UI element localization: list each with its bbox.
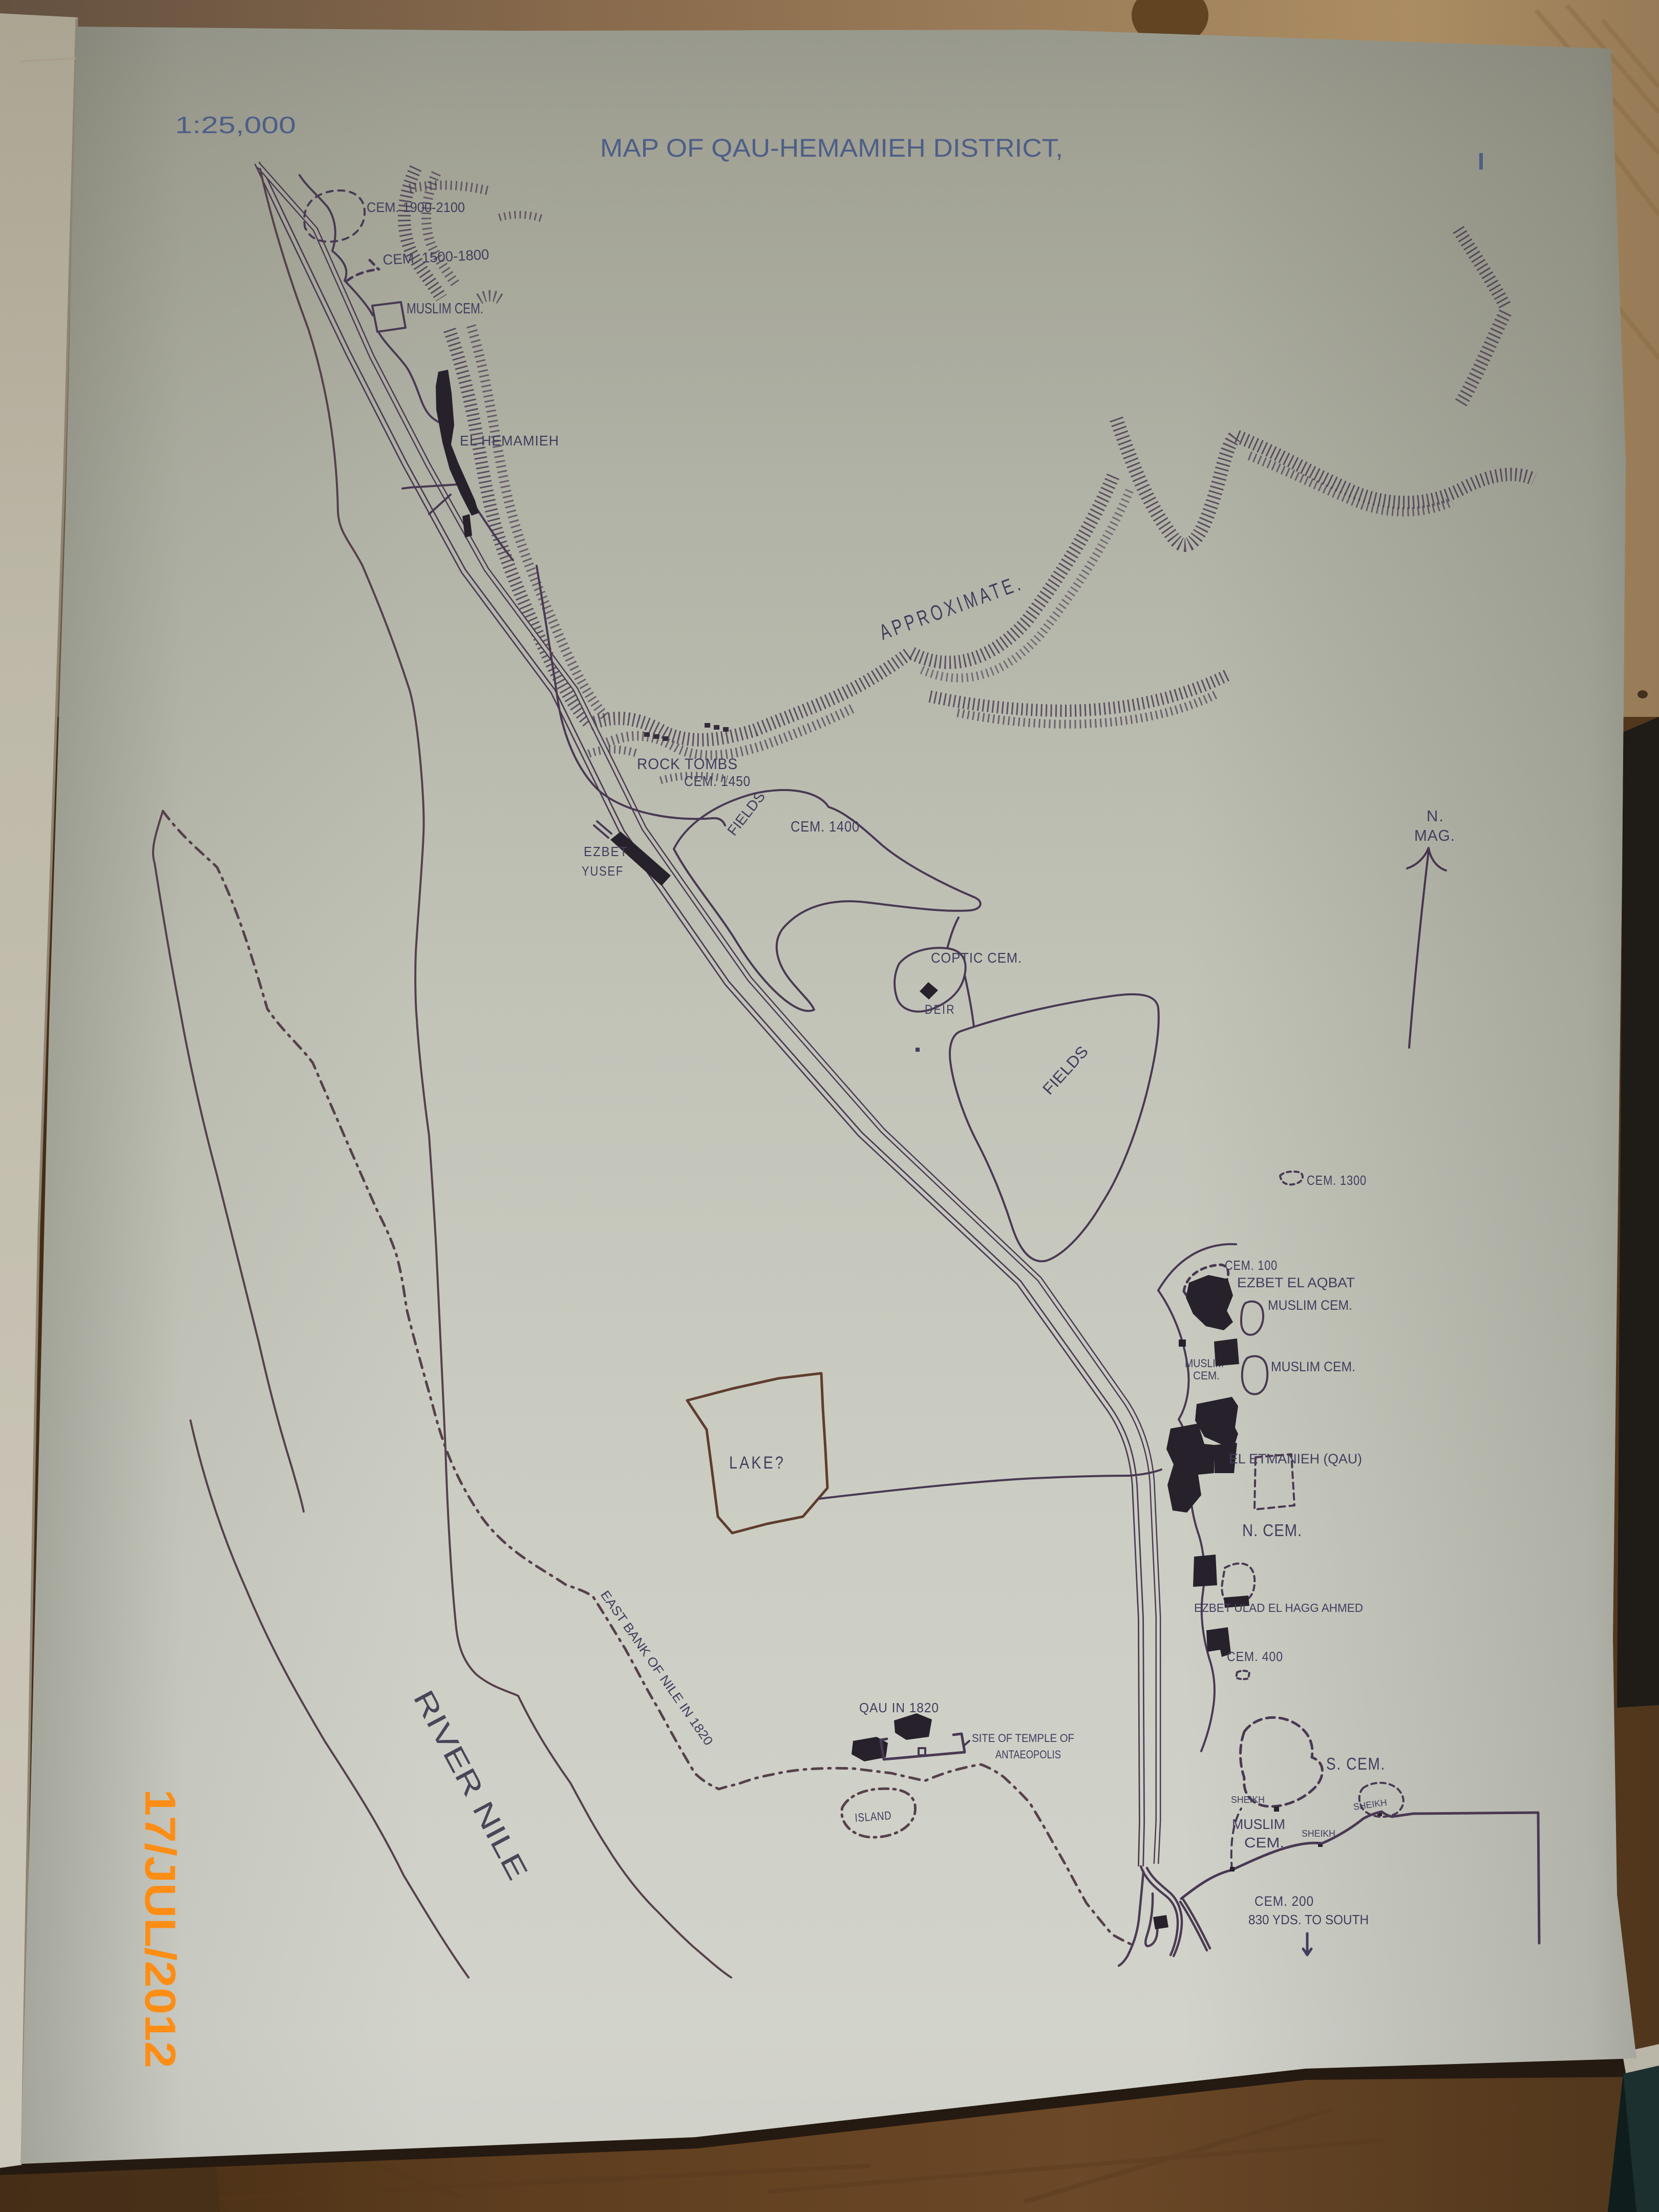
svg-text:1:25,000: 1:25,000 [175, 112, 296, 138]
svg-text:17/JUL/2012: 17/JUL/2012 [136, 1789, 184, 2068]
svg-text:MAP OF QAU-HEMAMIEH DISTRICT,: MAP OF QAU-HEMAMIEH DISTRICT, [600, 134, 1063, 162]
